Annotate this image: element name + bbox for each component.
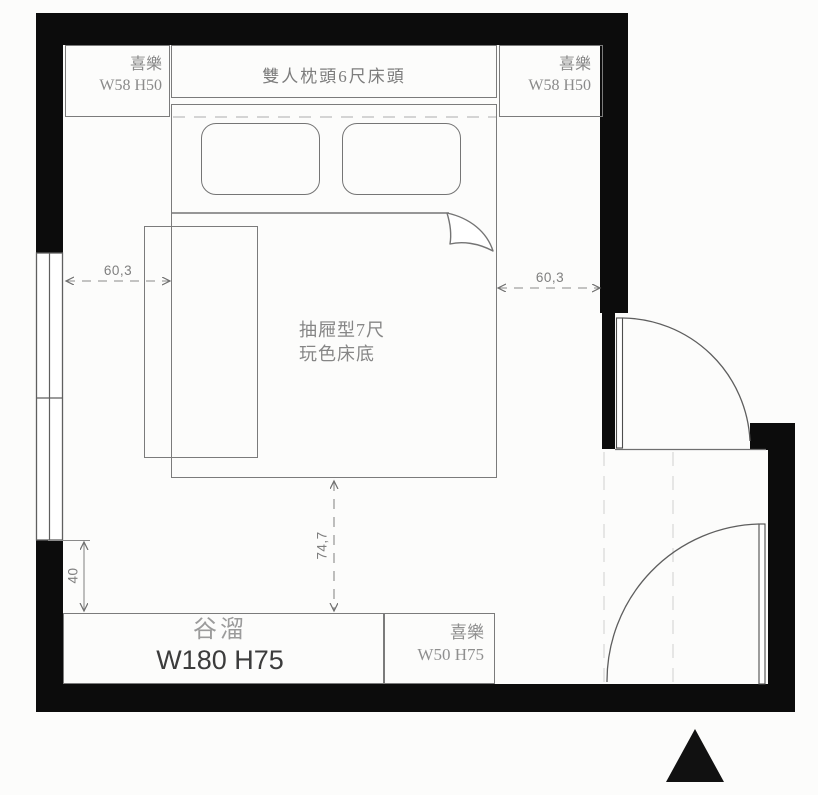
closet-door-swing-arc bbox=[607, 524, 759, 682]
cabinet-bottom-small-label: 喜樂 W50 H75 bbox=[384, 622, 484, 666]
cabinet-top-right-name: 喜樂 bbox=[499, 54, 591, 75]
dim-text-right-gap: 60,3 bbox=[520, 270, 580, 285]
nightstand bbox=[144, 226, 258, 458]
entry-door-leaf bbox=[617, 318, 623, 448]
bed-label: 抽屜型7尺 玩色床底 bbox=[299, 318, 385, 366]
cabinet-bottom-small-name: 喜樂 bbox=[384, 622, 484, 644]
dim-text-window-to-cabinet: 40 bbox=[66, 561, 81, 591]
closet-door-leaf bbox=[759, 524, 765, 684]
closet-door bbox=[607, 524, 765, 684]
cabinet-bottom-large-name: 谷溜 bbox=[120, 617, 320, 645]
cabinet-top-right-label: 喜樂 W58 H50 bbox=[499, 54, 591, 96]
pillow-left bbox=[201, 123, 320, 195]
headboard-label: 雙人枕頭6尺床頭 bbox=[171, 62, 497, 87]
dim-text-bed-to-cabinet: 74,7 bbox=[315, 526, 330, 566]
pillow-right bbox=[342, 123, 461, 195]
entry-door-swing-arc bbox=[623, 318, 751, 441]
cabinet-bottom-large-size: W180 H75 bbox=[156, 645, 284, 675]
cabinet-top-left-size: W58 H50 bbox=[99, 77, 162, 94]
cabinet-bottom-small-size: W50 H75 bbox=[417, 645, 484, 664]
entry-door bbox=[615, 318, 766, 450]
cabinet-bottom-large-label: 谷溜 W180 H75 bbox=[120, 617, 320, 676]
window bbox=[37, 253, 63, 540]
entrance-marker-triangle bbox=[666, 729, 724, 782]
bed-label-line1: 抽屜型7尺 bbox=[299, 318, 385, 342]
cabinet-top-left-name: 喜樂 bbox=[65, 54, 162, 75]
cabinet-top-right-size: W58 H50 bbox=[528, 77, 591, 94]
floor-plan: 喜樂 W58 H50 雙人枕頭6尺床頭 喜樂 W58 H50 抽屜型7尺 玩色床… bbox=[0, 0, 818, 795]
dim-text-left-gap: 60,3 bbox=[90, 263, 146, 278]
cabinet-top-left-label: 喜樂 W58 H50 bbox=[65, 54, 162, 96]
bed-label-line2: 玩色床底 bbox=[299, 342, 385, 366]
